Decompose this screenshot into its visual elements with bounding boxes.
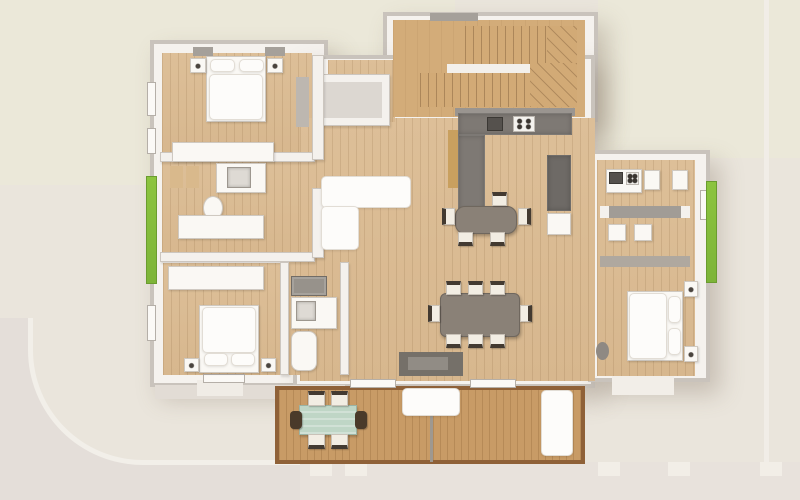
wall-bathbl-west [280, 262, 289, 375]
wall-leftwing-east-upper [312, 55, 324, 160]
window-bottom-bl [203, 374, 245, 383]
bed-bl-pillow-right [231, 353, 255, 366]
outdoor-chair-top-2 [331, 391, 348, 406]
dining-chair-bottom-3 [490, 334, 505, 348]
stair-winder-lower [530, 63, 577, 107]
window-sill-tl-2 [265, 47, 285, 56]
window-left-3 [147, 305, 156, 341]
stair-window-lintel [430, 13, 478, 21]
studio-kitchenette-sink [609, 172, 623, 184]
dining-chair-bottom-2 [468, 334, 483, 348]
planter-left [146, 176, 157, 284]
kitchen-white-unit [547, 213, 571, 235]
window-sill-tl-1 [193, 47, 213, 56]
kitchen-chair-bottom-1 [458, 232, 473, 246]
bath1-cabinet-2 [186, 166, 199, 188]
nightstand-bl-right [261, 358, 276, 372]
kitchen-sink [487, 117, 503, 131]
dining-chair-top-1 [446, 281, 461, 295]
nightstand-tl-left [190, 58, 206, 73]
tv-sideboard-inner [408, 357, 448, 370]
terrace-sofa-right [541, 390, 573, 456]
kitchen-table [455, 206, 517, 234]
bed-bl-duvet [202, 307, 256, 353]
planter-right [706, 181, 717, 283]
kitchen-chair-right [518, 208, 531, 225]
bed-right-duvet [629, 293, 667, 359]
dining-chair-right [520, 305, 532, 322]
path-right-band [764, 0, 769, 500]
studio-unit-1 [644, 170, 660, 190]
window-left-1 [147, 82, 156, 116]
bath1-cabinet-1 [170, 166, 183, 188]
nightstand-tl-right [267, 58, 283, 73]
path-bottom-band [300, 462, 800, 500]
fence-post-2 [345, 462, 367, 476]
studio-counter-cap-right [681, 206, 690, 218]
dining-chair-top-3 [490, 281, 505, 295]
floor-plan-canvas [0, 0, 800, 500]
bed-right-pillow-top [668, 296, 681, 323]
sofa-l-vertical [321, 206, 359, 250]
studio-counter-cap-left [600, 206, 609, 218]
outdoor-chair-bottom-2 [331, 434, 348, 449]
lawn-patch-top-right [598, 0, 800, 158]
bed-right-pillow-bottom [668, 328, 681, 355]
kitchen-chair-bottom-2 [490, 232, 505, 246]
nightstand-bl-left [184, 358, 199, 372]
window-bottom-living-2 [470, 379, 516, 388]
studio-stool-1 [608, 224, 626, 241]
stair-winder-upper [547, 26, 577, 64]
bed-bl-pillow-left [204, 353, 228, 366]
bath2-sink [296, 301, 316, 321]
dining-chair-bottom-1 [446, 334, 461, 348]
wardrobe-bl [168, 266, 264, 290]
corridor-closet [178, 215, 264, 239]
outdoor-chair-top-1 [308, 391, 325, 406]
wardrobe-tl [172, 142, 274, 162]
pouf-studio [596, 342, 609, 360]
kitchen-chair-top [492, 192, 507, 206]
kitchen-tall-unit [547, 155, 571, 211]
stair-flight-lower [420, 73, 530, 107]
studio-counter [600, 206, 690, 218]
bath2-washer [291, 276, 327, 296]
kitchen-chair-left [442, 208, 455, 225]
outdoor-chair-end-left [290, 411, 302, 429]
dining-chair-top-2 [468, 281, 483, 295]
porch-entry-right [612, 375, 674, 395]
nightstand-right-top [684, 281, 698, 297]
kitchen-counter-left [458, 135, 485, 211]
outdoor-chair-bottom-1 [308, 434, 325, 449]
studio-unit-2 [672, 170, 688, 190]
terrace-sofa-top [402, 388, 460, 416]
dining-chair-left [428, 305, 440, 322]
wall-bathbl-east [340, 262, 349, 375]
studio-kitchenette-burners [626, 172, 639, 185]
stair-flight-upper [465, 26, 547, 64]
storage-room-floor [324, 82, 382, 118]
outdoor-chair-end-right [355, 411, 367, 429]
kitchen-cooktop [513, 116, 535, 132]
sofa-l-horizontal [321, 176, 411, 208]
wall-corridor-south [160, 252, 315, 262]
window-left-2 [147, 128, 156, 154]
outdoor-table [299, 405, 357, 435]
fence-post-4 [668, 462, 690, 476]
bath1-sink [227, 167, 251, 188]
studio-stool-2 [634, 224, 652, 241]
bed-tl-pillow-left [210, 59, 235, 72]
nightstand-right-bottom [684, 346, 698, 362]
fence-post-3 [598, 462, 620, 476]
dresser-tl-east [296, 77, 309, 127]
dining-table [440, 293, 520, 337]
bed-tl-pillow-right [239, 59, 264, 72]
window-bottom-living-1 [350, 379, 396, 388]
fence-post-5 [760, 462, 782, 476]
bed-tl-duvet [209, 74, 263, 120]
bath2-tub [291, 331, 317, 371]
fence-post-1 [310, 462, 332, 476]
wall-studio-divider [600, 256, 690, 267]
